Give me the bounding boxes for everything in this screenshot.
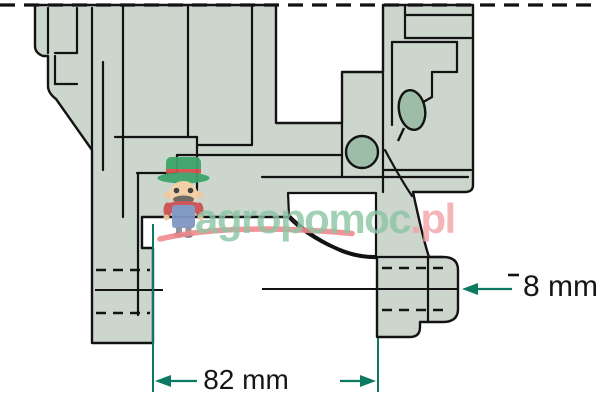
watermark-brand: agropomoc.pl (195, 197, 455, 241)
watermark-brand-tld: .pl (410, 195, 455, 242)
dimension-label-8mm: 8 mm (523, 270, 598, 304)
axis-lines (95, 289, 457, 290)
technical-diagram: agropomoc.pl 82 mm 8 mm (0, 0, 600, 401)
watermark-brand-main: agropomoc (195, 195, 410, 242)
arrow-left-icon (155, 375, 171, 387)
housing-body (35, 5, 473, 343)
dimension-label-82mm: 82 mm (192, 363, 300, 397)
arrow-boss-icon (462, 283, 478, 295)
arrow-right-icon (360, 375, 376, 387)
